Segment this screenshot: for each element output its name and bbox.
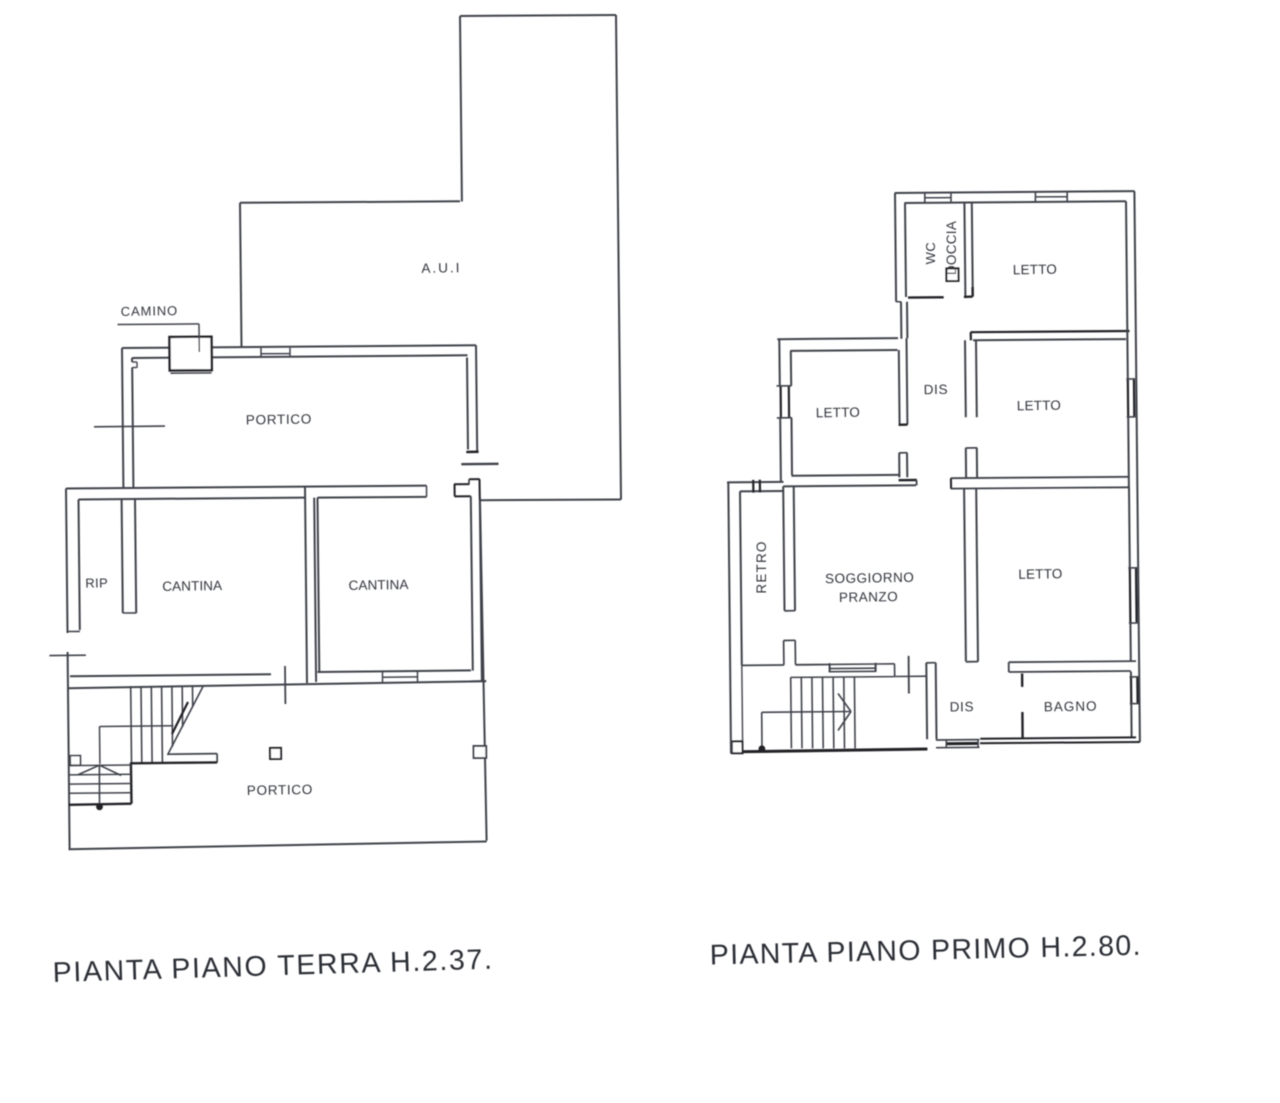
svg-text:LETTO: LETTO xyxy=(816,405,860,421)
svg-text:PRANZO: PRANZO xyxy=(839,589,898,605)
svg-text:PIANTA PIANO PRIMO H.2.80.: PIANTA PIANO PRIMO H.2.80. xyxy=(709,930,1142,972)
svg-text:PORTICO: PORTICO xyxy=(247,782,313,798)
svg-text:CANTINA: CANTINA xyxy=(162,578,222,594)
svg-text:WC: WC xyxy=(923,242,938,265)
svg-text:DIS: DIS xyxy=(924,382,949,397)
svg-text:RIP: RIP xyxy=(85,575,108,590)
svg-text:LETTO: LETTO xyxy=(1017,398,1061,414)
svg-text:LETTO: LETTO xyxy=(1018,566,1062,582)
svg-text:LETTO: LETTO xyxy=(1013,262,1057,278)
svg-text:RETRO: RETRO xyxy=(754,540,769,593)
svg-text:DOCCIA: DOCCIA xyxy=(944,221,959,275)
svg-text:BAGNO: BAGNO xyxy=(1044,699,1098,715)
svg-text:SOGGIORNO: SOGGIORNO xyxy=(825,570,914,586)
svg-text:CAMINO: CAMINO xyxy=(121,303,179,319)
svg-text:DIS: DIS xyxy=(950,699,975,714)
svg-text:A.U.I: A.U.I xyxy=(421,260,461,276)
svg-text:PIANTA PIANO TERRA H.2.37.: PIANTA PIANO TERRA H.2.37. xyxy=(52,944,494,989)
svg-text:CANTINA: CANTINA xyxy=(348,577,408,593)
svg-text:PORTICO: PORTICO xyxy=(246,411,312,427)
